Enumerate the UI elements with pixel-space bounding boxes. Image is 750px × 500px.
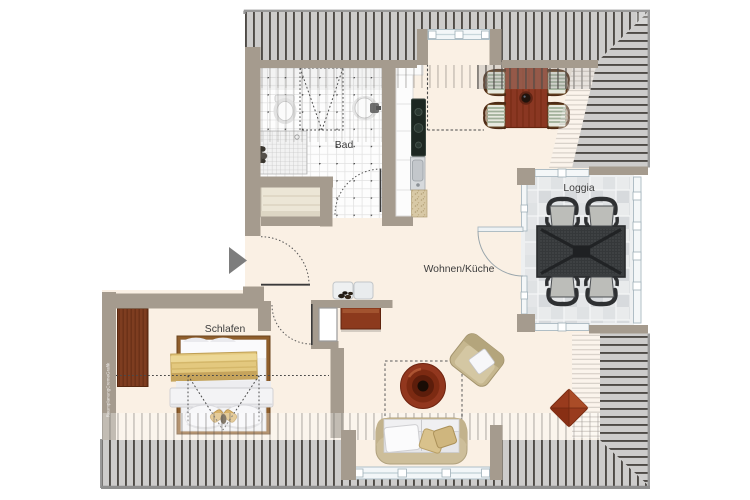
svg-text:Bad: Bad [335,140,354,151]
svg-text:Wohnen/Küche: Wohnen/Küche [424,264,495,275]
svg-text:RaumplanungCremeGrafik: RaumplanungCremeGrafik [106,362,111,417]
svg-text:Schlafen: Schlafen [205,324,246,335]
svg-text:Loggia: Loggia [563,183,594,194]
